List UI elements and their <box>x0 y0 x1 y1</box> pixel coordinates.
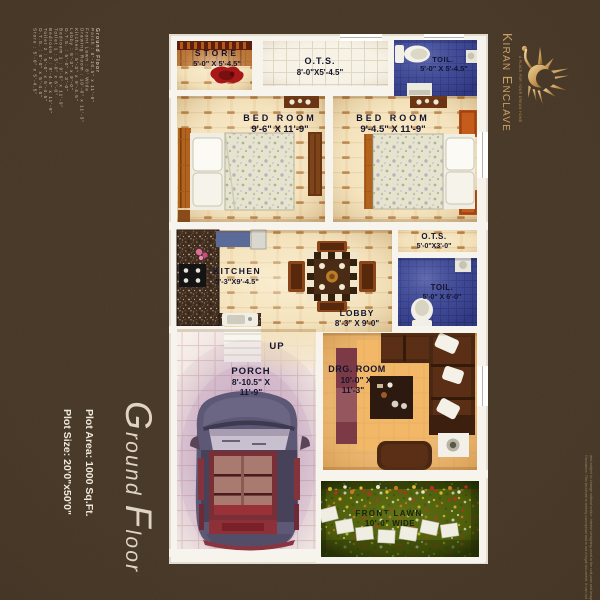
svg-text:10'-0" X: 10'-0" X <box>340 375 371 385</box>
svg-text:DRG. ROOM: DRG. ROOM <box>328 364 386 374</box>
svg-text:O.T.S.: O.T.S. <box>421 232 446 241</box>
svg-text:Plot Area: 1000 Sq.Ft.: Plot Area: 1000 Sq.Ft. <box>83 409 95 517</box>
svg-text:FRONT LAWN: FRONT LAWN <box>355 509 422 518</box>
svg-text:KIRAN ENCLAVE: KIRAN ENCLAVE <box>500 33 514 132</box>
svg-text:9'-4.5" X 11'-9": 9'-4.5" X 11'-9" <box>360 124 425 135</box>
svg-text:PORCH: PORCH <box>231 366 270 377</box>
svg-text:Store : 5'-0" x 5'-4.5": Store : 5'-0" x 5'-4.5" <box>33 28 38 95</box>
svg-text:5'-0" X 5'-4.5": 5'-0" X 5'-4.5" <box>193 59 241 68</box>
svg-text:8'-0"X5'-4.5": 8'-0"X5'-4.5" <box>297 68 344 77</box>
svg-text:8'-10.5" X: 8'-10.5" X <box>232 377 271 387</box>
svg-text:BED ROOM: BED ROOM <box>243 113 317 123</box>
svg-text:STORE: STORE <box>195 48 239 58</box>
svg-text:KITCHEN: KITCHEN <box>213 266 261 276</box>
svg-text:O.T.S.: O.T.S. <box>304 56 335 66</box>
svg-text:5'-3"X9'-4.5": 5'-3"X9'-4.5" <box>215 277 259 286</box>
svg-text:5'-0"X3'-0": 5'-0"X3'-0" <box>417 243 452 250</box>
svg-text:Disclaimer: This brochure is m: Disclaimer: This brochure is merely conc… <box>584 455 588 600</box>
svg-text:5'-0" X 5'-4.5": 5'-0" X 5'-4.5" <box>420 64 468 73</box>
svg-text:10'-0" WIDE: 10'-0" WIDE <box>365 519 415 528</box>
svg-text:and subject to change without: and subject to change without notice. In… <box>589 455 593 600</box>
svg-text:11'-3": 11'-3" <box>342 385 365 395</box>
svg-text:9'-6" X 11'-9": 9'-6" X 11'-9" <box>251 124 308 135</box>
svg-text:UP: UP <box>269 341 284 352</box>
svg-text:Plot Size: 20'0"x50'0": Plot Size: 20'0"x50'0" <box>61 409 73 515</box>
svg-text:11'-9": 11'-9" <box>240 387 263 397</box>
svg-text:A PLACE FOR YOUR DREAM HOME: A PLACE FOR YOUR DREAM HOME <box>518 56 522 123</box>
svg-text:TOIL.: TOIL. <box>432 55 454 64</box>
svg-text:BED ROOM: BED ROOM <box>356 113 430 123</box>
svg-text:8'-3" X 9'-0": 8'-3" X 9'-0" <box>335 319 380 328</box>
svg-text:TOIL.: TOIL. <box>431 283 454 292</box>
svg-text:LOBBY: LOBBY <box>340 308 375 318</box>
svg-text:5'-0" X 6'-0": 5'-0" X 6'-0" <box>423 294 462 301</box>
